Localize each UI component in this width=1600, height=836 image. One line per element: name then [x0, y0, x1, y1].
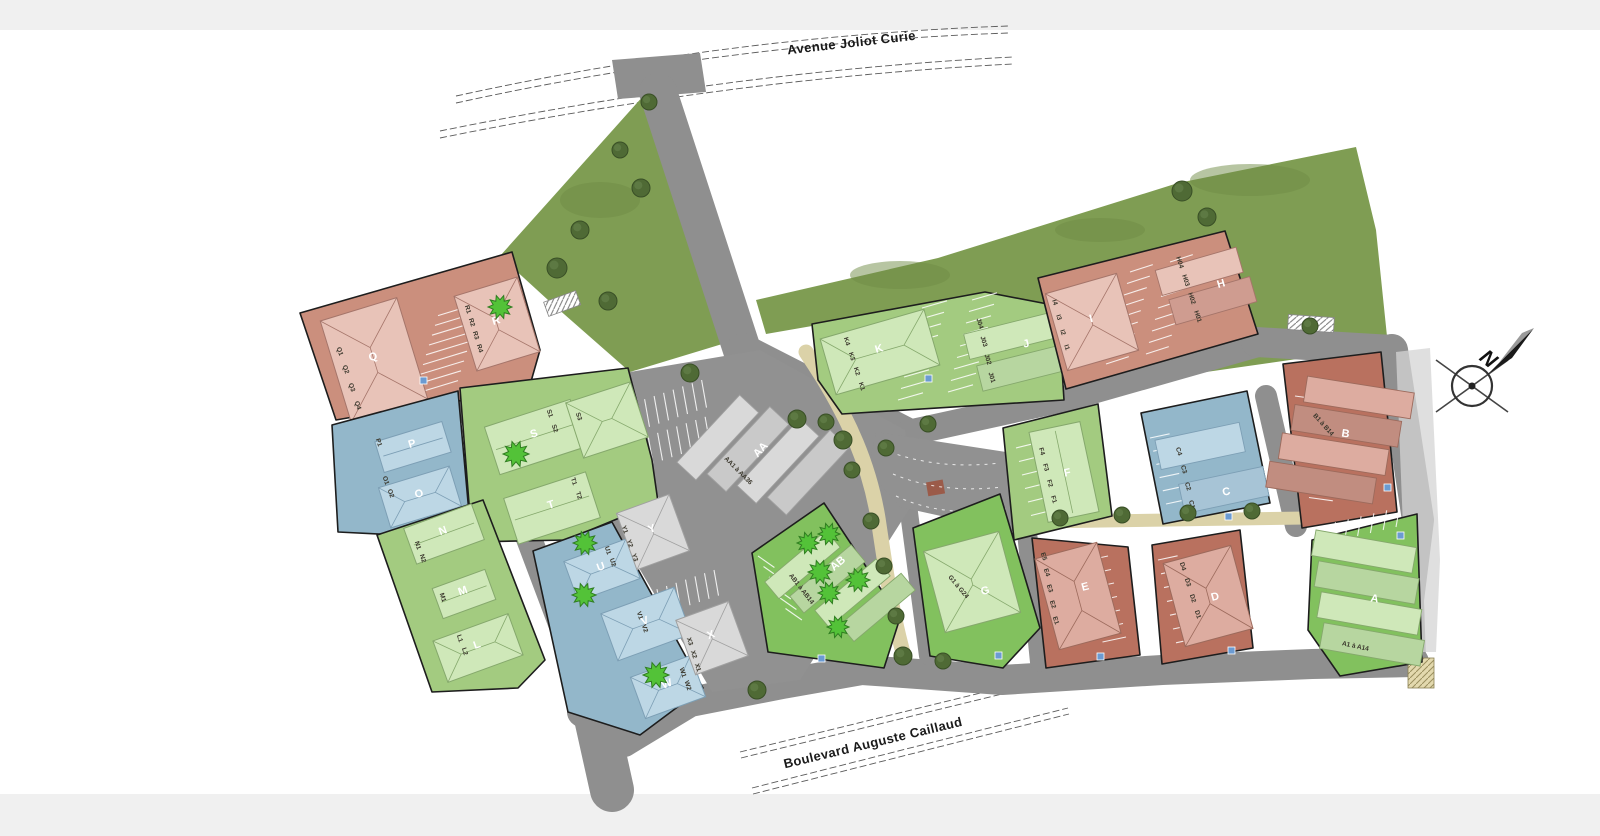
- top-band: [0, 0, 1600, 30]
- accessible-parking-marker: [1384, 484, 1391, 491]
- north-letter: N: [1475, 345, 1502, 373]
- boulevard-label: Boulevard Auguste Caillaud: [782, 714, 964, 771]
- accessible-parking-marker: [818, 655, 825, 662]
- accessible-parking-marker: [995, 652, 1002, 659]
- kiosk: [926, 480, 945, 497]
- bottom-band: [0, 794, 1600, 836]
- parcel-e: EE5E4E3E2E1: [1032, 538, 1140, 668]
- avenue-label: Avenue Joliot Curie: [786, 28, 916, 58]
- site-plan-page: QRQ1Q2Q3Q4R1R2R3R4POP1O1O2STS1S2S3T1T2NM…: [0, 0, 1600, 836]
- north-arrow: N: [1436, 328, 1534, 412]
- accessible-parking-marker: [420, 377, 427, 384]
- accessible-parking-marker: [1097, 653, 1104, 660]
- masterplan-drawing: QRQ1Q2Q3Q4R1R2R3R4POP1O1O2STS1S2S3T1T2NM…: [0, 0, 1600, 836]
- accessible-parking-marker: [1397, 532, 1404, 539]
- accessible-parking-marker: [925, 375, 932, 382]
- parcel-d: DD4D3D2D1: [1152, 530, 1253, 664]
- accessible-parking-marker: [1225, 513, 1232, 520]
- accessible-parking-marker: [1228, 647, 1235, 654]
- road: [1256, 342, 1392, 350]
